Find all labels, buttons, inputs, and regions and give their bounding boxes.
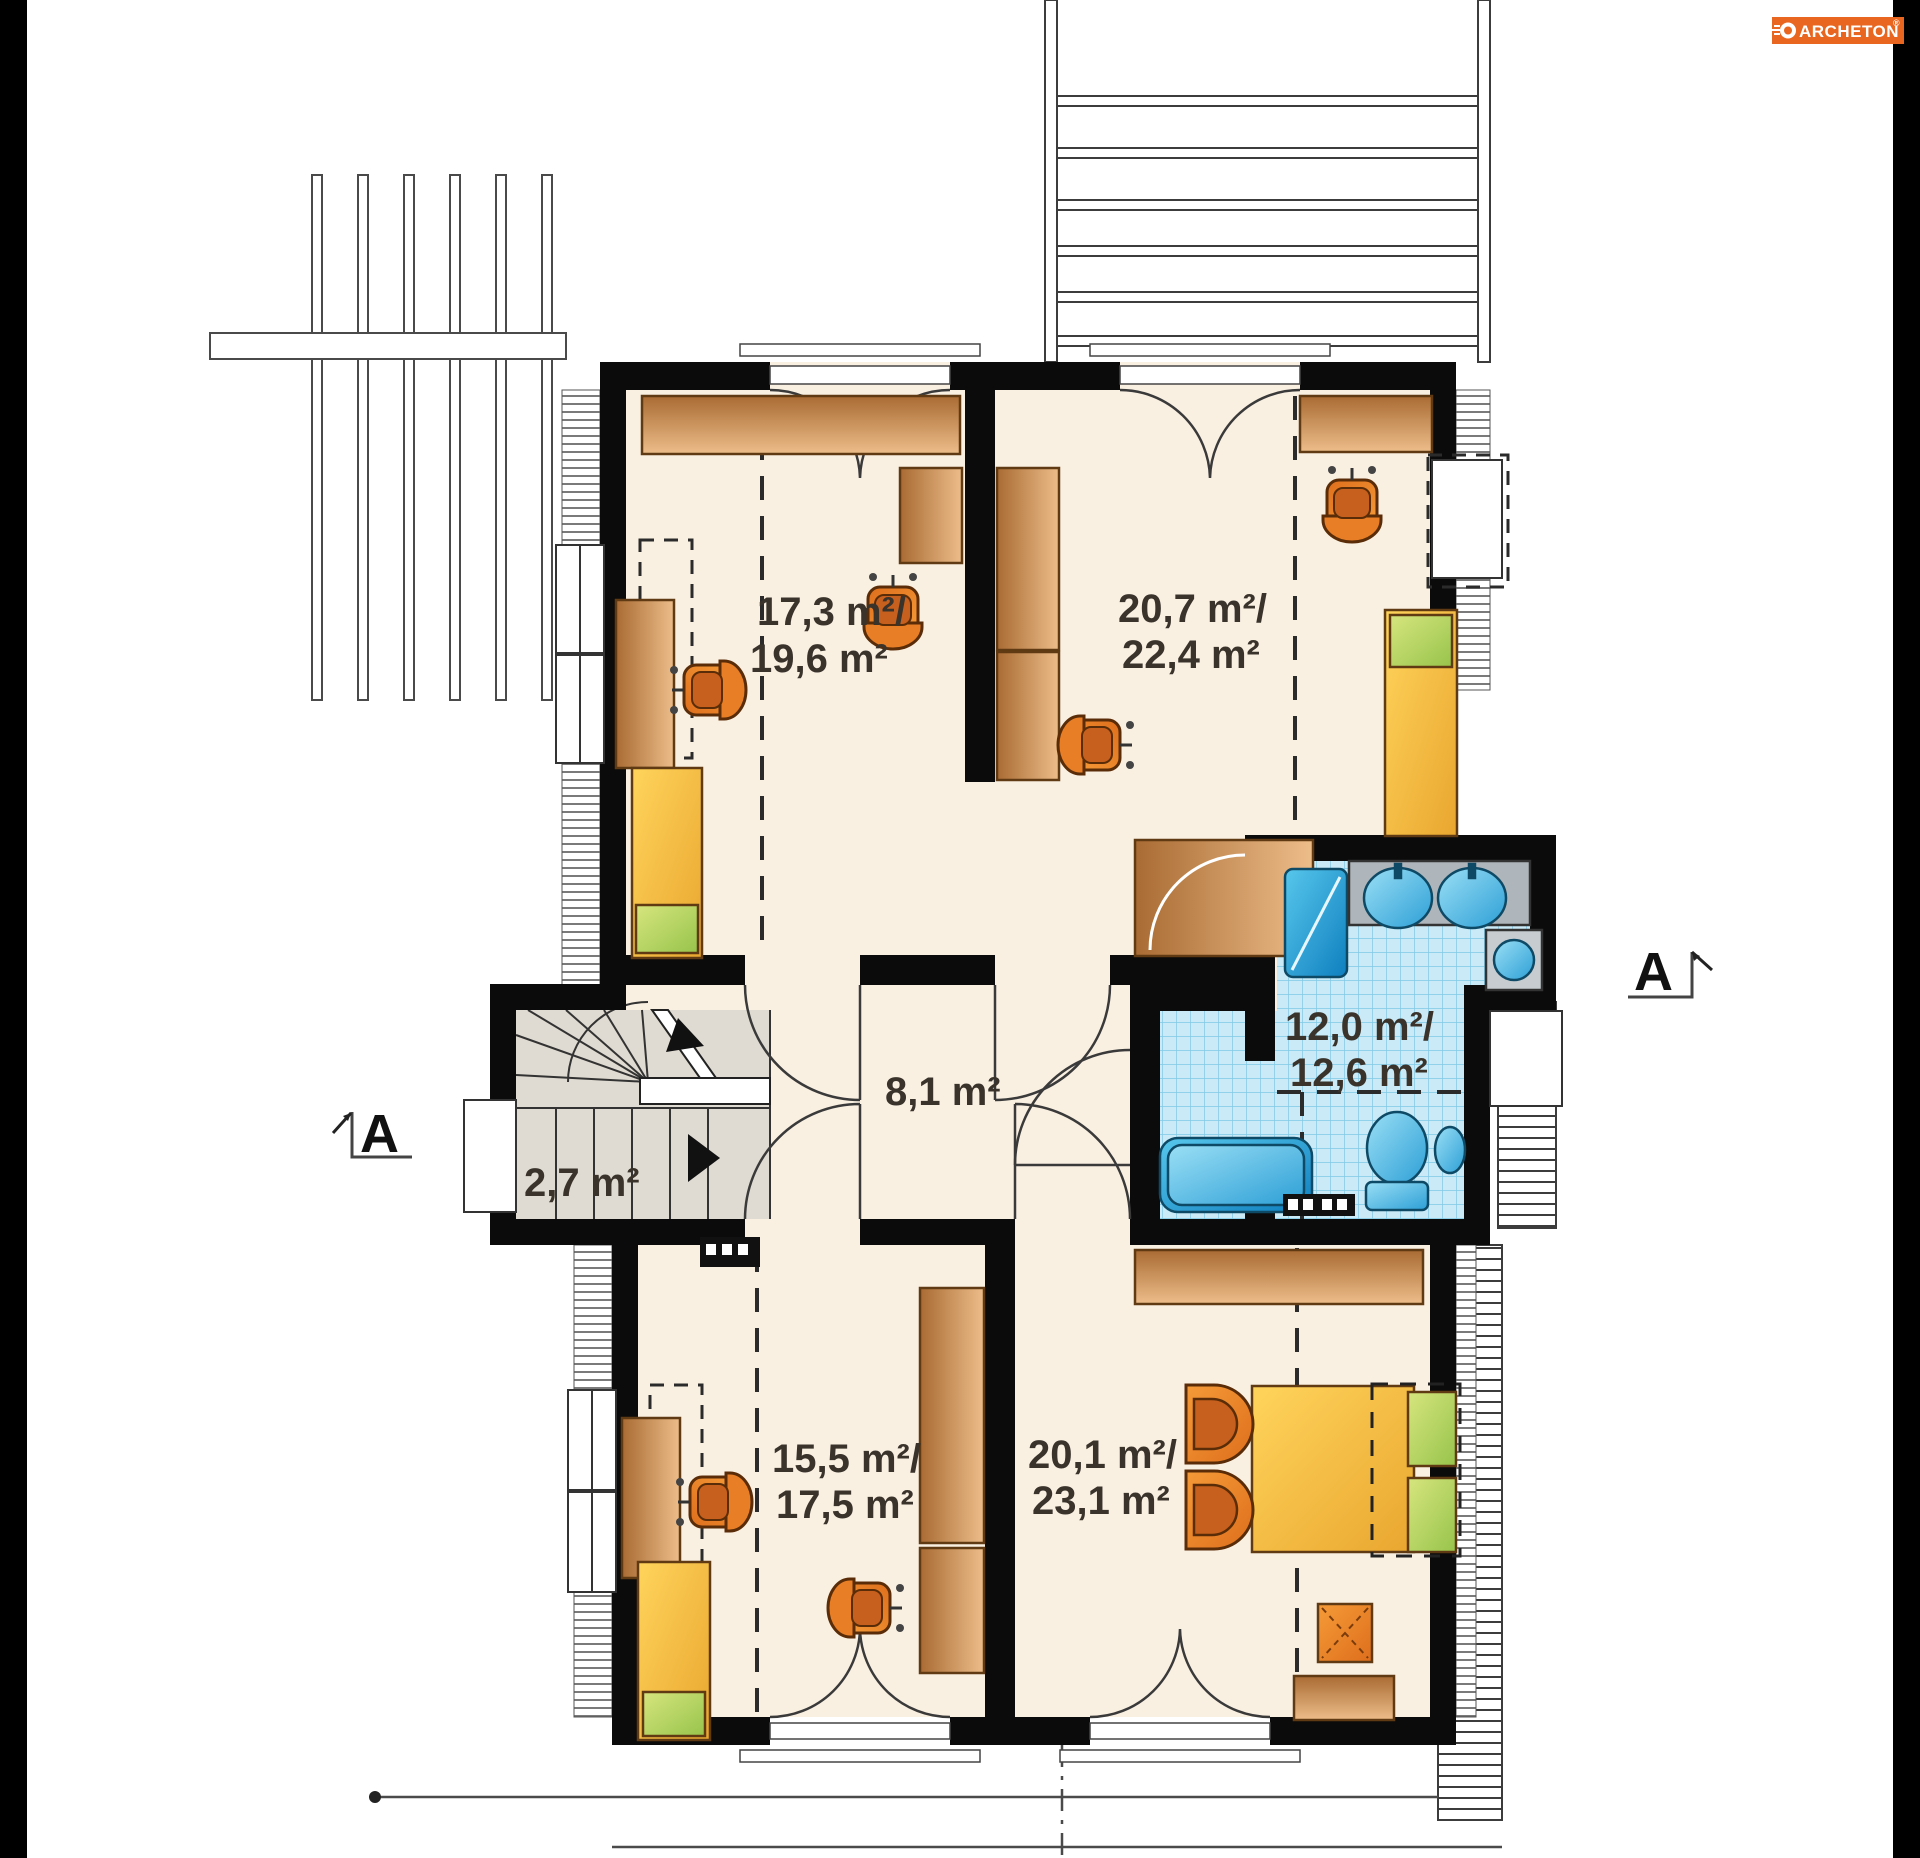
- svg-text:22,4 m²: 22,4 m²: [1122, 633, 1260, 677]
- label-stair-closet: 2,7 m²: [524, 1161, 640, 1205]
- label-bedroom-top-right: 20,7 m²/: [1118, 587, 1267, 631]
- svg-text:A: A: [360, 1104, 399, 1164]
- sideboard: [1135, 1250, 1423, 1304]
- label-bathroom: 12,0 m²/: [1285, 1005, 1434, 1049]
- armchair-icon: [1186, 1471, 1253, 1549]
- label-hall: 8,1 m²: [885, 1070, 1001, 1114]
- svg-text:23,1 m²: 23,1 m²: [1032, 1479, 1170, 1523]
- bed-double: [1252, 1386, 1414, 1552]
- desk: [997, 652, 1059, 780]
- label-bedroom-bottom-left: 15,5 m²/: [772, 1437, 921, 1481]
- svg-text:19,6 m²: 19,6 m²: [750, 637, 888, 681]
- desk: [920, 1548, 984, 1673]
- label-bedroom-bottom-right: 20,1 m²/: [1028, 1433, 1177, 1477]
- wardrobe: [997, 468, 1059, 650]
- cabinet: [900, 468, 962, 563]
- pillow: [643, 1692, 705, 1736]
- bidet: [1435, 1127, 1465, 1173]
- svg-text:®: ®: [1893, 18, 1900, 28]
- hall-radiator: [700, 1237, 760, 1267]
- window-stair-bay: [464, 1100, 516, 1212]
- svg-text:ARCHETON: ARCHETON: [1799, 22, 1899, 41]
- dresser: [1294, 1676, 1394, 1720]
- toilet: [1367, 1112, 1427, 1184]
- page-edge-left: [0, 0, 27, 1858]
- desk: [1300, 396, 1432, 452]
- svg-text:17,5 m²: 17,5 m²: [776, 1483, 914, 1527]
- armchair-icon: [1186, 1385, 1253, 1463]
- svg-text:12,6 m²: 12,6 m²: [1290, 1051, 1428, 1095]
- floorplan-page: 17,3 m²/ 19,6 m² 20,7 m²/ 22,4 m² 12,0 m…: [0, 0, 1920, 1858]
- exterior-stair-top: [1045, 0, 1490, 362]
- window-right-bay: [1490, 1011, 1562, 1106]
- pillow: [1390, 615, 1452, 667]
- desk: [616, 600, 674, 768]
- floorplan-drawing: 17,3 m²/ 19,6 m² 20,7 m²/ 22,4 m² 12,0 m…: [0, 0, 1920, 1858]
- window-right-upper: [1432, 460, 1502, 578]
- balcony-pergola-top-left: [210, 175, 566, 700]
- wardrobe: [642, 396, 960, 454]
- section-marker-right: A: [1628, 942, 1712, 1002]
- pillow: [636, 905, 698, 953]
- page-edge-right: [1893, 0, 1920, 1858]
- bathroom-radiator: [1283, 1194, 1355, 1216]
- label-bedroom-top-left: 17,3 m²/: [757, 590, 906, 634]
- svg-text:A: A: [1634, 942, 1673, 1002]
- section-marker-left: A: [333, 1104, 412, 1164]
- archeton-logo: ARCHETON ®: [1772, 17, 1904, 44]
- pillow: [1408, 1478, 1456, 1552]
- pillow: [1408, 1392, 1456, 1466]
- toilet-tank: [1366, 1182, 1428, 1210]
- wardrobe: [920, 1288, 984, 1543]
- terrace-marker-dot: [369, 1791, 381, 1803]
- stair-handrail-landing: [640, 1078, 770, 1104]
- desk: [622, 1418, 680, 1578]
